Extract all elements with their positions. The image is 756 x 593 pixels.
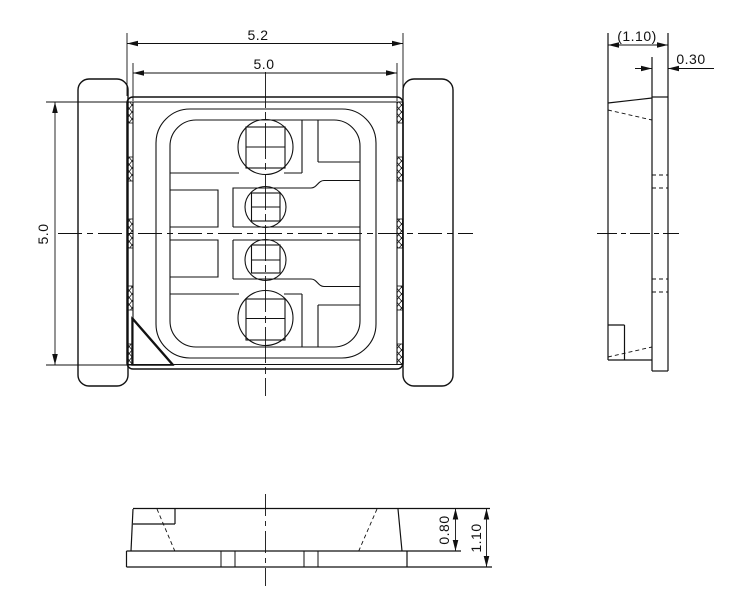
dim-label-front-overall-height: 1.10 [468,523,484,552]
arrowhead [392,41,403,47]
package-body-outline [127,97,403,369]
drawing-sheet: 5.2 5.0 5.0 (1.10) 0.30 0.80 1.10 [0,0,756,593]
arrowhead [127,41,138,47]
dim-label-body-height: 5.0 [35,224,51,245]
arrowhead [386,70,397,76]
polarity-triangle-hypotenuse [132,318,173,365]
left-lead [78,79,128,386]
lead-slab-sides [127,551,408,567]
hidden-line-right-draft [359,509,378,552]
drawing-canvas: 5.2 5.0 5.0 (1.10) 0.30 0.80 1.10 [0,0,756,593]
dim-label-side-overall-width: (1.10) [617,28,657,44]
dimension-front-body-height [453,509,459,552]
hidden-line-bottom-draft [608,347,652,357]
dim-label-side-lead-width: 0.30 [676,51,705,67]
arrowhead [52,354,58,365]
dim-label-outer-width: 5.2 [248,27,269,43]
hidden-line-top-draft [608,110,652,120]
arrowhead [484,556,490,567]
front-left-edge [131,509,133,551]
dimension-front-overall-height [484,509,490,568]
front-pin1-notch [133,509,175,524]
dim-label-body-width: 5.0 [254,56,275,72]
side-view [597,33,714,371]
side-top-face [608,98,652,103]
lead-separation-grooves [221,551,318,567]
arrowhead [641,66,652,72]
arrowhead [133,70,144,76]
arrowhead [484,509,490,520]
front-right-edge [398,509,402,551]
arrowhead [657,42,668,48]
arrowhead [453,540,459,551]
arrowhead [453,509,459,520]
top-view [46,33,473,396]
hidden-line-left-draft [157,509,175,552]
right-lead [403,79,453,386]
arrowhead [52,102,58,113]
dim-label-front-body-height: 0.80 [436,515,452,544]
